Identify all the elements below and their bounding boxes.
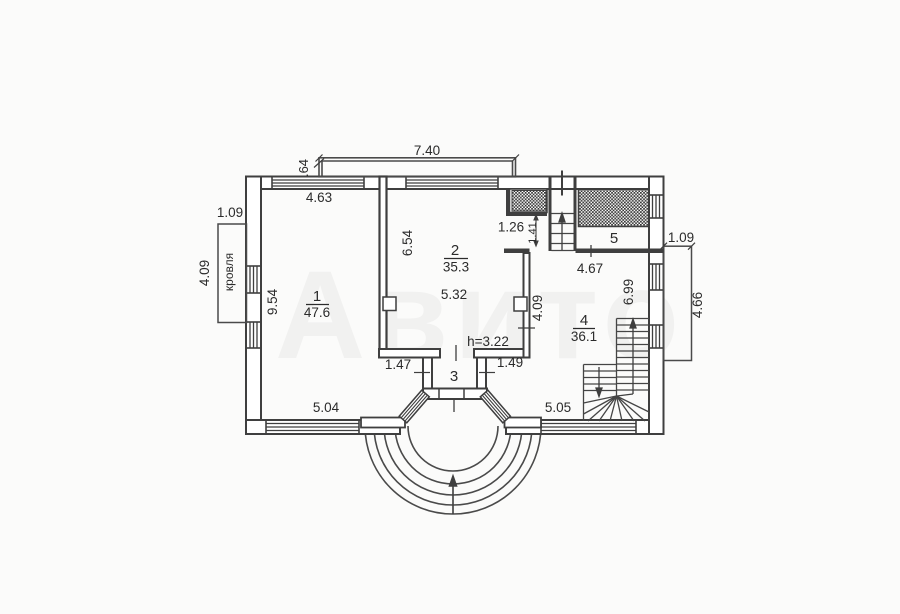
svg-text:1.09: 1.09	[217, 205, 243, 220]
svg-text:4.66: 4.66	[690, 292, 705, 318]
svg-text:1.41: 1.41	[527, 222, 539, 243]
svg-text:1: 1	[313, 288, 321, 305]
svg-text:5.04: 5.04	[313, 400, 340, 415]
svg-text:36.1: 36.1	[571, 329, 597, 344]
svg-text:5.05: 5.05	[545, 400, 571, 415]
svg-text:4.09: 4.09	[530, 295, 545, 321]
svg-text:5: 5	[610, 230, 618, 247]
svg-text:1.26: 1.26	[498, 220, 524, 235]
svg-text:7.40: 7.40	[414, 143, 440, 158]
svg-text:35.3: 35.3	[443, 260, 469, 275]
svg-text:1.49: 1.49	[497, 355, 523, 370]
svg-text:кровля: кровля	[222, 253, 236, 291]
svg-text:4: 4	[580, 312, 588, 329]
svg-text:6.54: 6.54	[400, 229, 415, 256]
svg-text:4.67: 4.67	[577, 261, 603, 276]
svg-text:.64: .64	[296, 159, 311, 177]
svg-text:1.09: 1.09	[668, 230, 694, 245]
svg-text:9.54: 9.54	[265, 288, 280, 315]
svg-text:4.63: 4.63	[306, 190, 332, 205]
svg-text:3: 3	[450, 368, 458, 385]
svg-text:6.99: 6.99	[621, 279, 636, 305]
svg-text:47.6: 47.6	[304, 305, 330, 320]
svg-text:4.09: 4.09	[197, 260, 212, 286]
svg-text:h=3.22: h=3.22	[467, 334, 509, 349]
svg-text:1.47: 1.47	[385, 357, 411, 372]
svg-text:5.32: 5.32	[441, 287, 467, 302]
svg-text:2: 2	[451, 242, 459, 259]
